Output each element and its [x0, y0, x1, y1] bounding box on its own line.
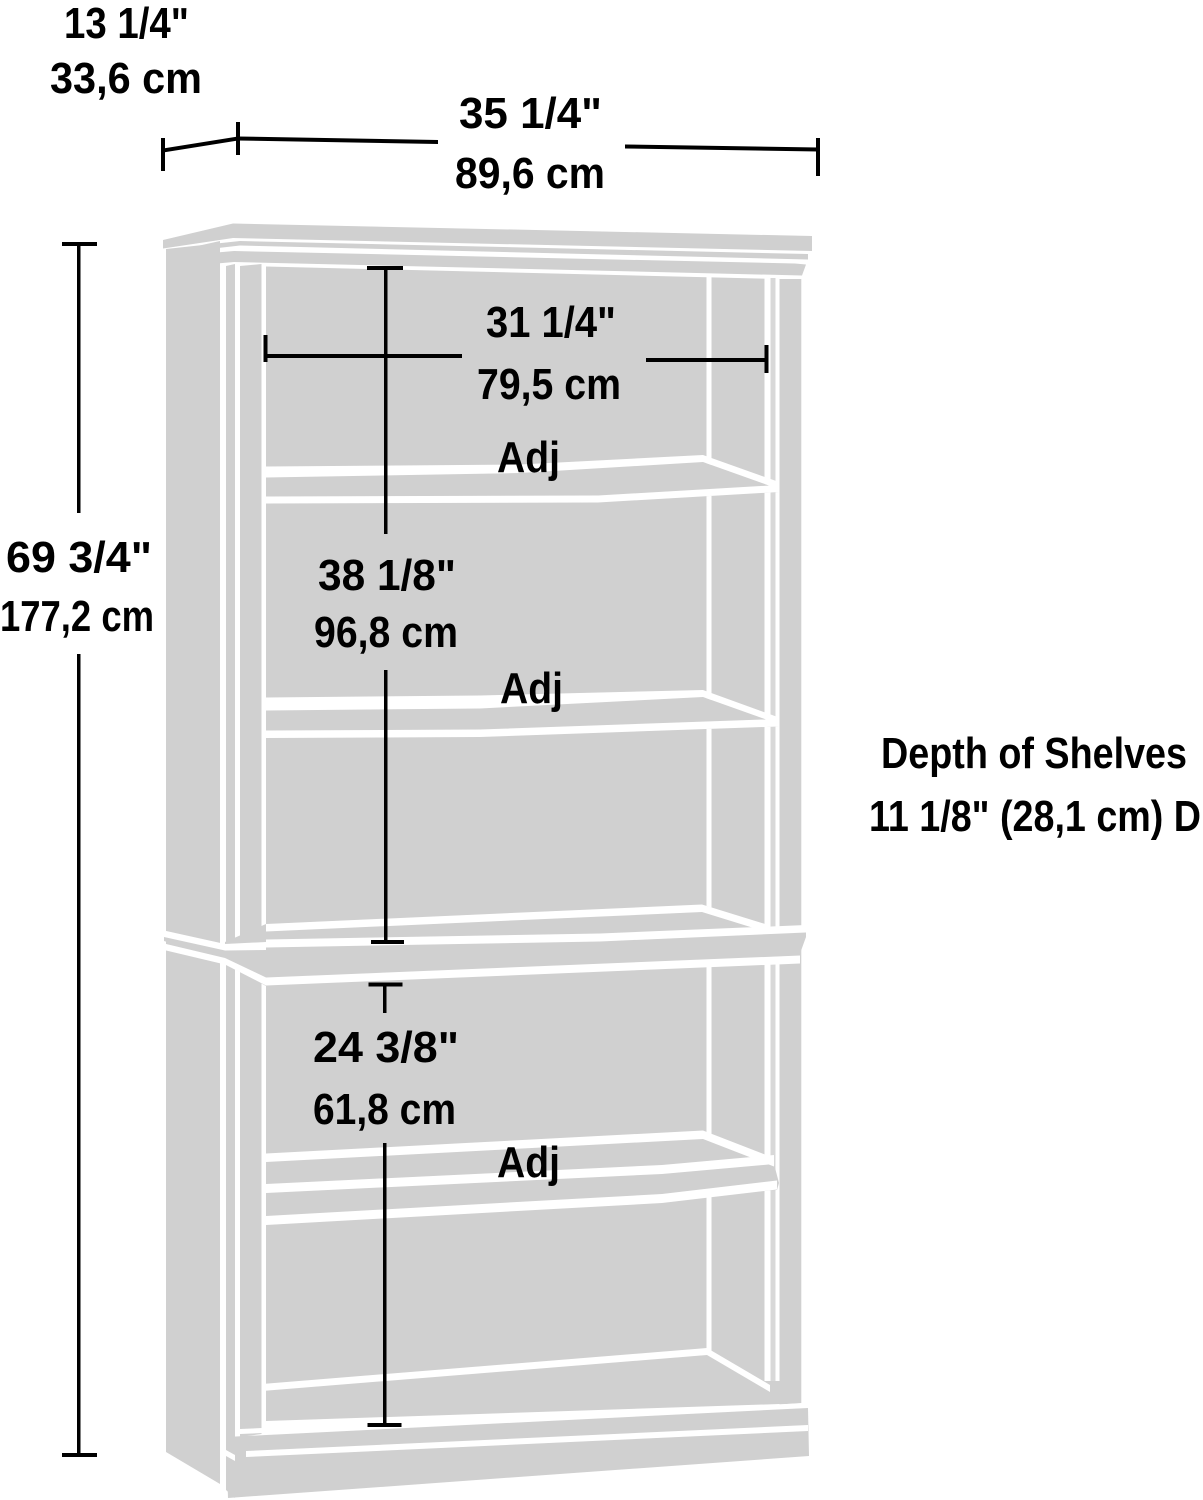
svg-text:11 1/8" (28,1 cm) D: 11 1/8" (28,1 cm) D	[869, 792, 1201, 841]
svg-text:Adj: Adj	[497, 1138, 560, 1187]
svg-text:96,8 cm: 96,8 cm	[314, 608, 458, 657]
svg-text:79,5 cm: 79,5 cm	[477, 360, 621, 409]
svg-text:69 3/4": 69 3/4"	[6, 533, 152, 582]
svg-text:Adj: Adj	[497, 433, 560, 482]
svg-text:Adj: Adj	[500, 664, 563, 713]
svg-text:61,8 cm: 61,8 cm	[313, 1085, 456, 1134]
svg-text:38 1/8": 38 1/8"	[318, 551, 456, 600]
svg-text:89,6 cm: 89,6 cm	[455, 149, 605, 198]
svg-text:177,2 cm: 177,2 cm	[0, 592, 154, 641]
svg-text:33,6 cm: 33,6 cm	[50, 54, 202, 103]
svg-text:13 1/4": 13 1/4"	[64, 0, 189, 48]
svg-text:Depth of Shelves: Depth of Shelves	[881, 729, 1187, 778]
svg-text:35 1/4": 35 1/4"	[459, 89, 602, 138]
svg-text:31 1/4": 31 1/4"	[486, 298, 616, 347]
svg-text:24 3/8": 24 3/8"	[313, 1023, 459, 1072]
